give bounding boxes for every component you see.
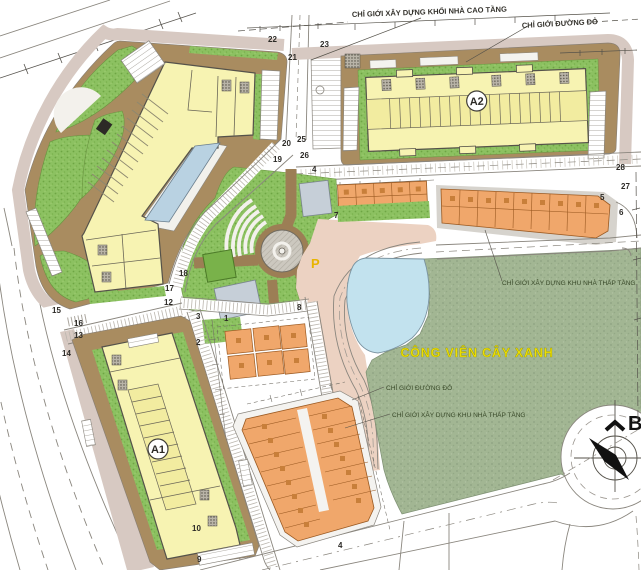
svg-text:12: 12 <box>164 298 173 307</box>
svg-text:A1: A1 <box>151 444 165 456</box>
svg-text:18: 18 <box>179 269 188 278</box>
svg-text:P: P <box>311 256 320 271</box>
svg-text:14: 14 <box>62 349 71 358</box>
svg-text:26: 26 <box>300 151 309 160</box>
svg-text:27: 27 <box>621 182 630 191</box>
svg-text:21: 21 <box>288 53 297 62</box>
svg-text:17: 17 <box>165 284 174 293</box>
svg-text:6: 6 <box>619 208 624 217</box>
svg-text:25: 25 <box>297 135 306 144</box>
svg-text:CHỈ GIỚI ĐƯỜNG ĐỎ: CHỈ GIỚI ĐƯỜNG ĐỎ <box>386 383 452 392</box>
svg-text:22: 22 <box>268 35 277 44</box>
svg-text:15: 15 <box>52 306 61 315</box>
svg-text:7: 7 <box>334 211 339 220</box>
svg-text:2: 2 <box>196 338 201 347</box>
svg-text:23: 23 <box>320 40 329 49</box>
svg-text:4: 4 <box>338 541 343 550</box>
svg-text:4: 4 <box>312 165 317 174</box>
svg-text:CÔNG VIÊN CÂY XANH: CÔNG VIÊN CÂY XANH <box>400 345 553 360</box>
svg-text:A2: A2 <box>469 96 484 109</box>
svg-text:3: 3 <box>196 312 201 321</box>
svg-text:20: 20 <box>282 139 291 148</box>
svg-text:10: 10 <box>192 524 201 533</box>
svg-text:5: 5 <box>600 193 605 202</box>
svg-text:28: 28 <box>616 163 625 172</box>
svg-text:8: 8 <box>297 303 302 312</box>
svg-text:19: 19 <box>273 155 282 164</box>
svg-text:B: B <box>628 413 641 435</box>
svg-text:1: 1 <box>224 314 229 323</box>
svg-text:16: 16 <box>74 319 83 328</box>
svg-text:9: 9 <box>197 555 202 564</box>
svg-text:13: 13 <box>74 331 83 340</box>
